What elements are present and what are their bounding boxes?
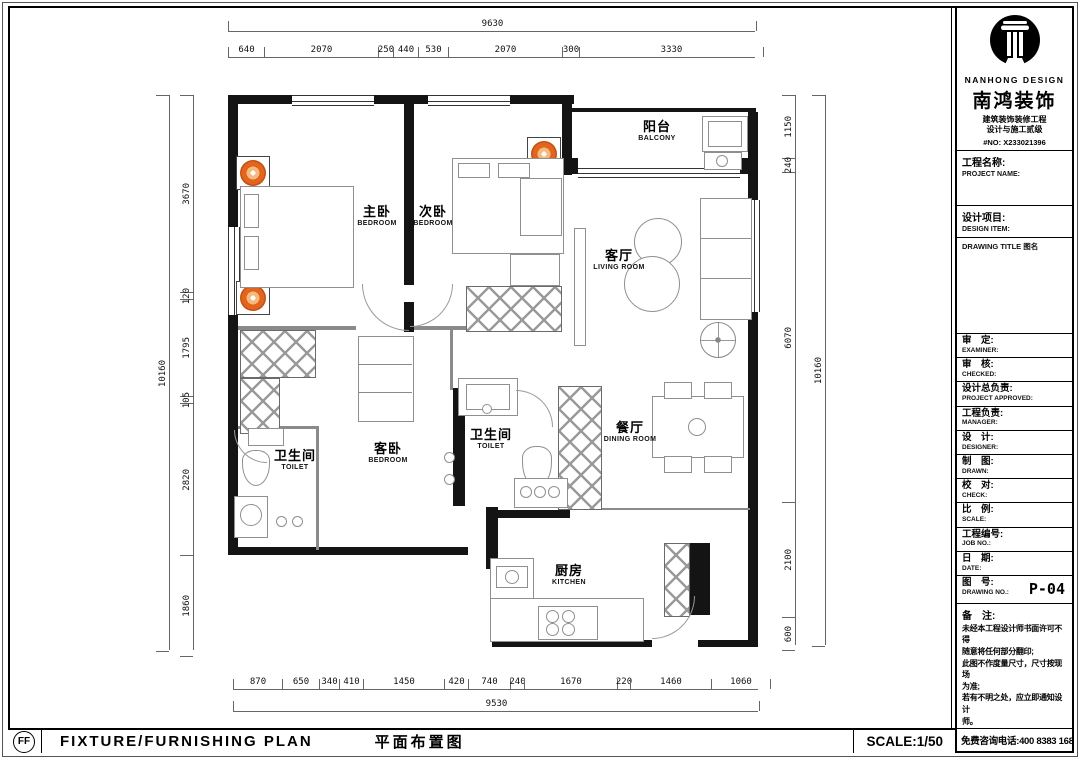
field-label-cn: 审 核: [962, 360, 1072, 371]
field-checked: 审 核: CHECKED: [957, 358, 1072, 382]
dresser [510, 254, 560, 286]
ac-symbol-icon [236, 156, 270, 190]
dimension-total-top: 9630 [228, 18, 755, 32]
dimension-value: 10160 [156, 95, 169, 652]
field-label-en: SCALE: [962, 516, 1072, 523]
dimension-total-bottom: 9530 [233, 698, 758, 712]
dimension-value: 1060 [711, 679, 771, 689]
wall-block [740, 158, 758, 174]
room-name-cn: 卫生间 [470, 428, 512, 441]
basin-circle [548, 486, 560, 498]
room-name-en: BEDROOM [357, 220, 396, 227]
project-name-label-en: PROJECT NAME: [962, 171, 1072, 178]
room-name-cn: 阳台 [638, 120, 675, 133]
certification-line2: 设计与施工贰级 [957, 125, 1072, 135]
pillow [458, 163, 490, 178]
pillow [498, 163, 530, 178]
balcony-rail [572, 108, 756, 112]
dimension-value: 1795 [180, 299, 193, 396]
dimension-value: 105 [180, 396, 193, 403]
room-name-en: BEDROOM [368, 457, 407, 464]
field-label-cn: 审 定: [962, 336, 1072, 347]
remarks-text: 未经本工程设计师书面许可不得 随意将任何部分翻印; 此图不作度量尺寸，尺寸按现场… [962, 623, 1069, 727]
room-name-en: DINING ROOM [604, 436, 657, 443]
field-project-approved: 设计总负责: PROJECT APPROVED: [957, 382, 1072, 406]
room-label-living-room: 客厅 LIVING ROOM [593, 249, 644, 271]
field-label-en: EXAMINER: [962, 347, 1072, 354]
wardrobe [466, 286, 562, 332]
sofa-cushion [700, 278, 752, 320]
field-label-en: MANAGER: [962, 419, 1072, 426]
field-label-en: CHECK: [962, 492, 1072, 499]
dimension-total-right: 10160 [812, 95, 826, 645]
drawing-title-label: DRAWING TITLE 图名 [962, 241, 1072, 252]
field-label-cn: 设 计: [962, 433, 1072, 444]
dimension-value: 9530 [233, 701, 760, 711]
floor-drain-icon [276, 516, 287, 527]
dimension-value: 410 [339, 679, 363, 689]
brand-name-cn: 南鸿装饰 [957, 86, 1072, 113]
dimension-value: 420 [444, 679, 468, 689]
room-name-cn: 厨房 [552, 564, 586, 577]
wardrobe [240, 330, 316, 378]
field-drawing-no: 图 号: DRAWING NO.: P-04 [957, 576, 1072, 604]
room-name-cn: 客厅 [593, 249, 644, 262]
certification-line1: 建筑装饰装修工程 [957, 115, 1072, 125]
room-name-en: KITCHEN [552, 579, 586, 586]
scale-label: SCALE:1/50 [853, 730, 955, 753]
room-name-en: BALCONY [638, 135, 675, 142]
room-name-cn: 客卧 [368, 442, 407, 455]
dimension-value: 6070 [782, 172, 795, 502]
field-label-cn: 校 对: [962, 481, 1072, 492]
drawing-number-value: P-04 [1029, 580, 1065, 598]
balcony-unit-knob [716, 155, 728, 167]
field-scale: 比 例: SCALE: [957, 503, 1072, 527]
field-label-cn: 设计总负责: [962, 384, 1072, 395]
dimension-value: 1670 [524, 679, 617, 689]
room-name-cn: 次卧 [413, 205, 452, 218]
wall [404, 95, 414, 285]
shelf-line [358, 392, 412, 393]
field-label-en: PROJECT APPROVED: [962, 395, 1072, 402]
burner [546, 623, 559, 636]
room-label-toilet-middle: 卫生间 TOILET [470, 428, 512, 450]
dimension-value: 3670 [180, 95, 193, 292]
room-name-cn: 主卧 [357, 205, 396, 218]
design-item-label-cn: 设计项目: [962, 209, 1072, 224]
shelf-cabinet [358, 336, 414, 422]
dimension-value: 9630 [228, 21, 757, 31]
wall [748, 112, 758, 645]
dimension-value: 10160 [812, 95, 825, 647]
dimension-chain-top: 640 2070 250 440 530 2070 300 3330 [228, 44, 755, 58]
room-label-kitchen: 厨房 KITCHEN [552, 564, 586, 586]
pillow [244, 236, 259, 270]
field-check: 校 对: CHECK: [957, 479, 1072, 503]
dimension-value: 440 [393, 47, 418, 57]
room-label-dining-room: 餐厅 DINING ROOM [604, 421, 657, 443]
burner [562, 610, 575, 623]
field-label-en: CHECKED: [962, 371, 1072, 378]
nanhong-logo-icon [988, 14, 1042, 68]
remarks-section: 备 注: 未经本工程设计师书面许可不得 随意将任何部分翻印; 此图不作度量尺寸，… [957, 604, 1072, 729]
burner [562, 623, 575, 636]
field-label-cn: 工程负责: [962, 409, 1072, 420]
dimension-value: 300 [562, 47, 579, 57]
footer-divider [41, 730, 42, 753]
field-label-cn: 比 例: [962, 505, 1072, 516]
field-label-en: DESIGNER: [962, 444, 1072, 451]
wardrobe [240, 378, 280, 434]
room-name-en: BEDROOM [413, 220, 452, 227]
design-item-section: 设计项目: DESIGN ITEM: [957, 206, 1072, 238]
dimension-value: 2820 [180, 403, 193, 555]
field-label-en: DRAWN: [962, 468, 1072, 475]
wall [698, 640, 758, 647]
shower-head-icon [444, 452, 455, 463]
pillow [244, 194, 259, 228]
wall [228, 547, 468, 555]
chair [664, 456, 692, 473]
partition [316, 426, 319, 550]
washing-machine-drum [240, 504, 262, 526]
field-designer: 设 计: DESIGNER: [957, 431, 1072, 455]
dimension-value: 740 [468, 679, 510, 689]
dimension-value: 600 [782, 617, 795, 651]
room-name-en: LIVING ROOM [593, 264, 644, 271]
company-logo-section: NANHONG DESIGN 南鸿装饰 建筑装饰装修工程 设计与施工贰级 #NO… [957, 8, 1072, 151]
room-label-master-bedroom: 主卧 BEDROOM [357, 205, 396, 227]
room-name-en: TOILET [470, 443, 512, 450]
field-job-no: 工程编号: JOB NO.: [957, 528, 1072, 552]
wall [374, 95, 428, 104]
dimension-chain-left: 3670 120 1795 105 2820 1860 [180, 95, 194, 650]
field-label-cn: 日 期: [962, 554, 1072, 565]
ceiling-fan-icon [700, 322, 736, 358]
tv-console [574, 228, 586, 346]
project-name-section: 工程名称: PROJECT NAME: [957, 151, 1072, 206]
dimension-value: 1860 [180, 555, 193, 657]
field-drawn: 制 图: DRAWN: [957, 455, 1072, 479]
consult-phone: 免费咨询电话:400 8383 168 [957, 729, 1072, 751]
title-block: NANHONG DESIGN 南鸿装饰 建筑装饰装修工程 设计与施工贰级 #NO… [955, 8, 1072, 751]
dimension-value: 2070 [264, 47, 378, 57]
dimension-value: 2070 [448, 47, 562, 57]
desk [520, 178, 562, 236]
room-name-en: TOILET [274, 464, 316, 471]
dimension-value: 340 [319, 679, 339, 689]
plan-title-en: FIXTURE/FURNISHING PLAN [60, 733, 313, 750]
dimension-value: 650 [282, 679, 319, 689]
dimension-value: 120 [180, 292, 193, 299]
plan-code-badge: FF [13, 731, 35, 753]
wall [486, 510, 570, 518]
field-label-cn: 工程编号: [962, 530, 1072, 541]
sofa-cushion [700, 198, 752, 240]
sink-drain [505, 570, 519, 584]
floor-drain-icon [292, 516, 303, 527]
dimension-value: 640 [228, 47, 264, 57]
washing-machine-drum [708, 121, 742, 147]
dimension-value: 1460 [630, 679, 711, 689]
certificate-number: #NO: X233021396 [957, 138, 1072, 147]
dimension-value: 1450 [363, 679, 444, 689]
chair [664, 382, 692, 399]
dimension-value: 1150 [782, 95, 795, 158]
room-name-cn: 卫生间 [274, 449, 316, 462]
room-label-guest-bedroom: 客卧 BEDROOM [368, 442, 407, 464]
field-label-cn: 制 图: [962, 457, 1072, 468]
sink-drain [482, 404, 492, 414]
field-label-en: JOB NO.: [962, 540, 1072, 547]
window [428, 95, 510, 106]
room-label-second-bedroom: 次卧 BEDROOM [413, 205, 452, 227]
dimension-value: 3330 [579, 47, 764, 57]
footer-title-bar: FF FIXTURE/FURNISHING PLAN 平面布置图 SCALE:1… [8, 728, 955, 753]
dimension-value: 220 [617, 679, 630, 689]
basin-circle [534, 486, 546, 498]
burner [546, 610, 559, 623]
dimension-value: 2100 [782, 502, 795, 617]
plan-title-cn: 平面布置图 [375, 731, 465, 752]
field-date: 日 期: DATE: [957, 552, 1072, 576]
drawing-title-section: DRAWING TITLE 图名 [957, 238, 1072, 334]
dimension-value: 870 [233, 679, 282, 689]
dimension-chain-bottom: 870 650 340 410 1450 420 740 240 1670 22… [233, 676, 758, 690]
design-item-label-en: DESIGN ITEM: [962, 226, 1072, 233]
dimension-total-left: 10160 [156, 95, 170, 650]
field-examiner: 审 定: EXAMINER: [957, 334, 1072, 358]
dimension-value: 530 [418, 47, 448, 57]
remarks-label: 备 注: [962, 607, 1069, 622]
partition [600, 508, 750, 510]
window [292, 95, 374, 106]
room-label-toilet-left: 卫生间 TOILET [274, 449, 316, 471]
dimension-value: 250 [378, 47, 393, 57]
partition [450, 330, 453, 390]
dimension-value: 240 [510, 679, 524, 689]
field-label-en: DATE: [962, 565, 1072, 572]
shower-head-icon [444, 474, 455, 485]
shelf-line [358, 364, 412, 365]
room-label-balcony: 阳台 BALCONY [638, 120, 675, 142]
basin-circle [520, 486, 532, 498]
dining-table-center [688, 418, 706, 436]
chair [704, 382, 732, 399]
chair [704, 456, 732, 473]
dimension-value: 240 [782, 158, 795, 172]
project-name-label-cn: 工程名称: [962, 154, 1072, 169]
field-manager: 工程负责: MANAGER: [957, 407, 1072, 431]
sofa-cushion [700, 238, 752, 280]
brand-name-en: NANHONG DESIGN [957, 75, 1072, 85]
room-name-cn: 餐厅 [604, 421, 657, 434]
dimension-chain-right: 1150 240 6070 2100 600 [782, 95, 796, 645]
